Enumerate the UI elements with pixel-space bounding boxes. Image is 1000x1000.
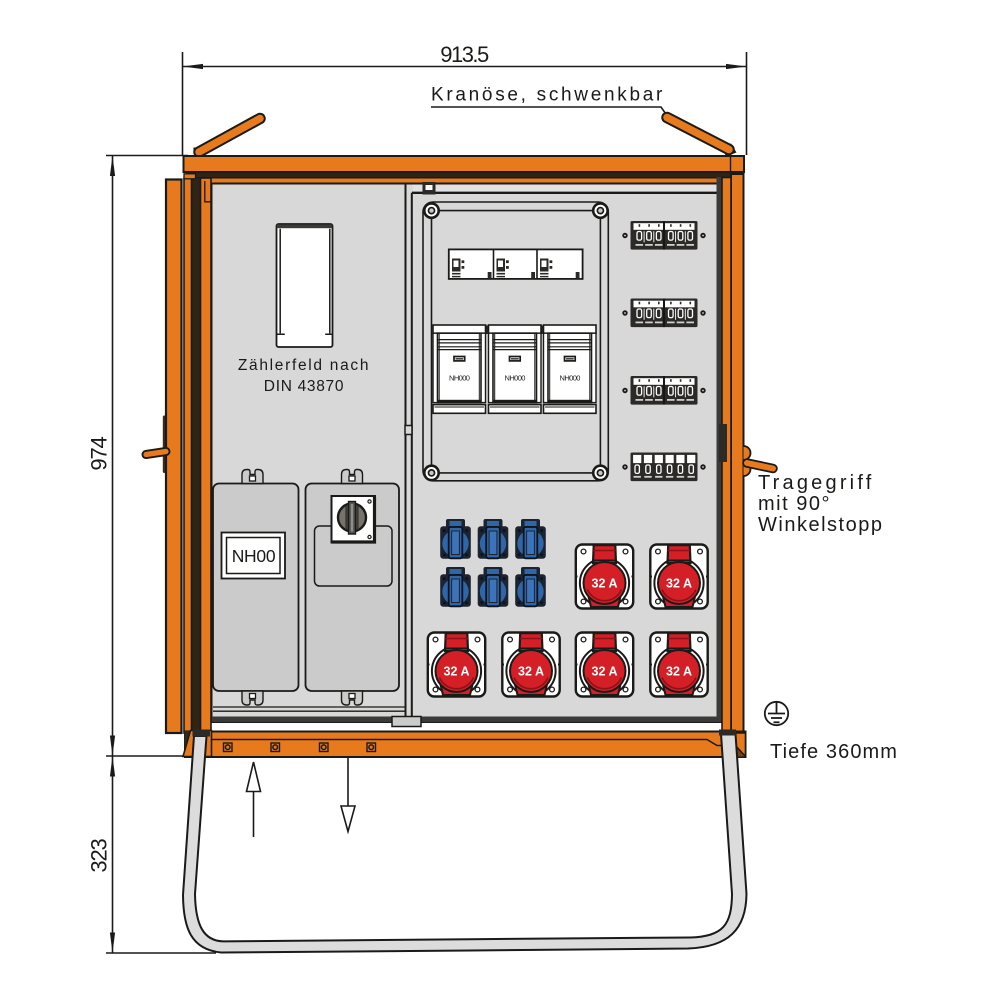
svg-text:Winkelstopp: Winkelstopp — [758, 514, 883, 536]
svg-text:Tiefe 360mm: Tiefe 360mm — [770, 741, 898, 763]
svg-text:Tragegriff: Tragegriff — [758, 472, 874, 494]
svg-text:DIN 43870: DIN 43870 — [264, 378, 344, 395]
svg-text:mit 90°: mit 90° — [758, 493, 831, 515]
svg-text:974: 974 — [87, 436, 112, 470]
svg-text:323: 323 — [87, 838, 112, 872]
svg-text:Kranöse, schwenkbar: Kranöse, schwenkbar — [431, 85, 665, 106]
svg-text:Zählerfeld nach: Zählerfeld nach — [238, 357, 370, 374]
svg-text:913.5: 913.5 — [440, 42, 489, 67]
svg-text:NH00: NH00 — [232, 546, 276, 566]
